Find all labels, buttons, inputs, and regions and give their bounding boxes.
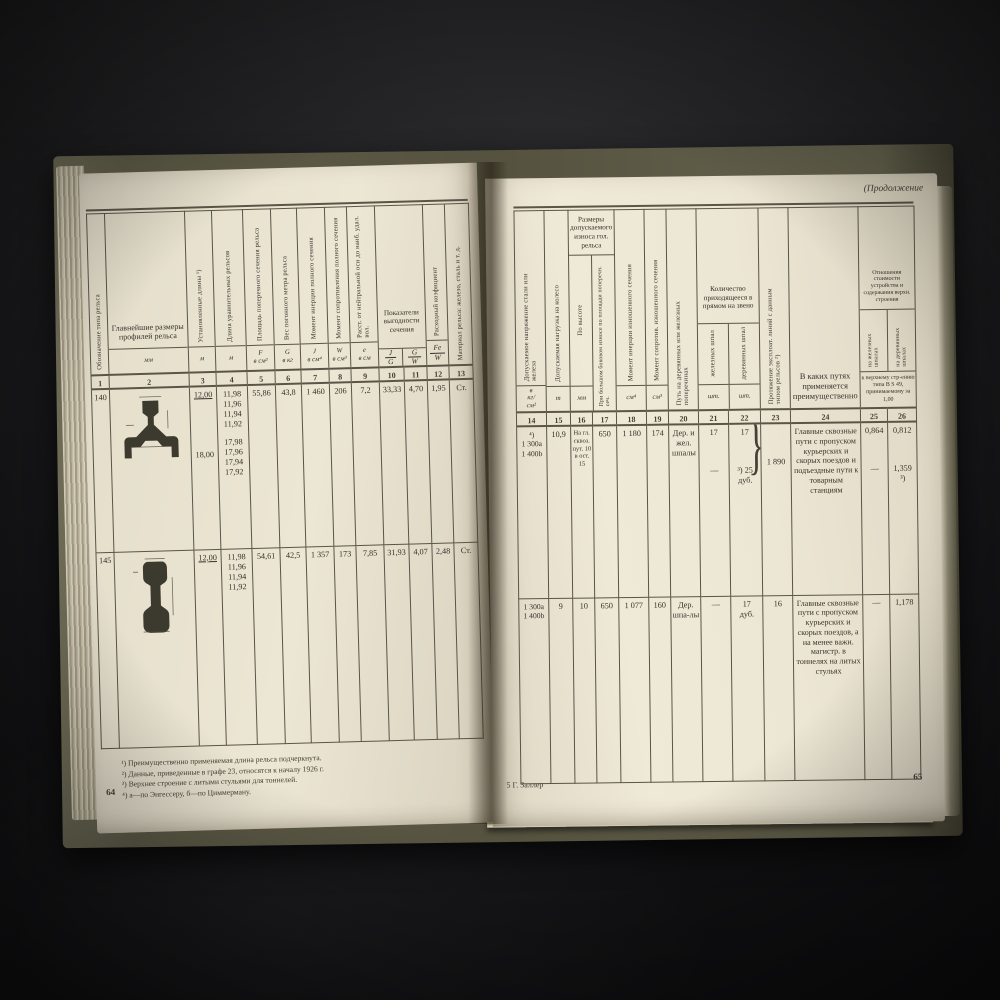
axis-dist-value: 7,2	[351, 381, 384, 545]
worn-inertia-value: 1 077	[619, 597, 651, 782]
col-unit: G в кг	[275, 344, 301, 370]
cost-wood-value: 1,178	[890, 594, 921, 779]
sub-col-label: на деревянных шпалах	[895, 312, 908, 366]
col-number: 14	[516, 412, 546, 426]
area-value: 55,86	[247, 384, 280, 548]
cost-ratio-note: к верхнему стр-ению типа В S 49, принима…	[860, 370, 915, 407]
col-number: 5	[247, 370, 275, 385]
grouping-brace: }	[748, 423, 763, 479]
col-area-header: Площадь поперечного сечения рельсаF в см…	[242, 209, 274, 371]
col-unit: F в см²	[247, 344, 275, 370]
line-extent-value: 1 890	[761, 423, 793, 595]
col-number: 25	[860, 408, 887, 422]
rail-table-right: Допускаемое напряжение стали или железав…	[513, 206, 921, 784]
col-number: 20	[668, 410, 698, 424]
worn-resistance-value: 174	[647, 425, 671, 597]
col-unit: м	[216, 345, 247, 371]
gw-fraction: GW	[408, 348, 422, 366]
page-number-left: 64	[106, 787, 115, 797]
col-label: Расходный коэфициент	[432, 266, 441, 335]
col-label: Расст. от нейтральной оси до наиб. удал.…	[353, 210, 371, 338]
col-number: 13	[449, 365, 473, 380]
stress-value: ⁴) 1 300a 1 400b	[517, 426, 549, 598]
line-extent-value: 16	[763, 595, 795, 780]
rail-profile-140-drawing	[119, 394, 183, 468]
inertia-value: 1 460	[301, 383, 334, 547]
wear-side-value: 650	[595, 597, 621, 782]
col-label: Протяжение эксплоат. линий с данным типо…	[767, 276, 783, 404]
col-label: Допускаемое напряжение стали или железа	[522, 253, 538, 381]
col-label: Обозначение типа рельса	[94, 294, 103, 370]
col-worn-inertia-header: Момент инерции изношенного сечениясм⁴	[614, 209, 646, 411]
wood-sleeper-count: 17³) 25 дуб.}	[729, 423, 763, 595]
col-unit: FeW	[427, 339, 449, 365]
header-row: Допускаемое напряжение стали или железав…	[514, 206, 916, 412]
col-unit: см⁴	[617, 385, 646, 410]
usage-description: Главные сквозные пути с пропуском курьер…	[791, 422, 863, 595]
col-eqrail-header: Длина уравнительных рельсовм	[211, 210, 246, 372]
col-unit: шт.	[730, 383, 760, 408]
col-number: 26	[887, 408, 916, 422]
col-line-extent-header: Протяжение эксплоат. линий с данным типо…	[758, 208, 790, 410]
rail-profile-145-drawing	[129, 557, 181, 636]
col-unit: шт.	[699, 384, 729, 409]
col-material-header: Материал рельса: железо, сталь и т. д.	[444, 203, 473, 365]
wear-height-value: На гл. сквоз. пут. 10 в ост. 15	[571, 425, 595, 597]
col-number: 21	[698, 410, 728, 424]
group-label: Количество приходящееся в прямом на звен…	[697, 273, 759, 324]
usage-description: Главные сквозные пути с пропуском курьер…	[793, 594, 865, 780]
continuation-label: (Продолжение	[864, 183, 924, 194]
col-unit: см³	[647, 385, 668, 410]
col-label: Момент сопротив. изношенного сечения	[652, 259, 661, 380]
col-label: Путь на деревянных или железных поперечи…	[675, 277, 691, 405]
wheel-load-value: 10,9	[547, 426, 573, 598]
col-cost-ratio-group-header: Отношения стоимости устройства и содержа…	[858, 206, 916, 408]
table-row: 140 12,0018,00 11,98 11,96 11,94 11,9217…	[91, 379, 477, 553]
wheel-load-value: 9	[549, 598, 575, 783]
col-label: Допускаемая нагрузка на колесо	[553, 285, 561, 382]
col-number: 8	[329, 368, 351, 383]
few-fraction: FeW	[429, 344, 445, 362]
col-label: Материал рельса: железо, сталь и т. д.	[454, 246, 464, 360]
sub-col-label: По высоте	[577, 305, 584, 336]
group-label: Размеры допускаемого износа гол. рельса	[568, 210, 614, 255]
col-wear-group-header: Размеры допускаемого износа гол. рельса …	[568, 210, 616, 412]
group-label: Показатели выгодности сечения	[377, 295, 425, 348]
right-page: (Продолжение Допускаемое напряжение стал…	[485, 173, 945, 826]
wear-height-value: 10	[573, 597, 597, 782]
page-number-right: 65	[913, 771, 922, 781]
col-axis-dist-header: Расст. от нейтральной оси до наиб. удал.…	[346, 206, 378, 368]
col-number: 15	[546, 412, 570, 426]
col-worn-resistance-header: Момент сопротив. изношенного сечениясм³	[644, 209, 668, 411]
col-unit: в кг/ см²	[517, 385, 546, 412]
wood-sleeper-count: 17 дуб.	[731, 595, 765, 780]
col-label: Момент сопротивления полного сечения	[332, 217, 342, 338]
col-unit: мм	[571, 385, 593, 410]
printer-signature: 5 Г. Заллер	[506, 780, 543, 789]
col-number: 1	[91, 375, 109, 389]
col-profile-header: Главнейшие размеры профилей рельсамм	[104, 211, 188, 375]
footnotes: ¹) Преимущественно применяемая длина рел…	[121, 749, 484, 802]
group-label: Отношения стоимости устройства и содержа…	[859, 264, 915, 309]
col-label: Установленные длины ¹)	[196, 269, 205, 342]
col-unit: J в см⁴	[301, 343, 329, 369]
table-row: 145 12,00 11,98 11,96 11,94 11,92 54,61 …	[96, 542, 483, 749]
col-wheel-load-header: Допускаемая нагрузка на колесот	[544, 210, 570, 412]
col-number: 7	[301, 369, 329, 384]
col-usage-header: В каких путях применяется преимущественн…	[788, 207, 860, 409]
col-track-type-header: Путь на деревянных или железных поперечи…	[666, 209, 698, 411]
col-unit: е в см	[351, 341, 379, 367]
wear-side-value: 650	[593, 425, 619, 597]
sub-col-label: железных шпал	[709, 330, 717, 377]
col-inertia-header: Момент инерции полного сеченияJ в см⁴	[296, 207, 328, 369]
eq-rail-values: 11,98 11,96 11,94 11,9217,98 17,96 17,94…	[216, 385, 252, 549]
col-number: 6	[275, 370, 301, 385]
col-number: 12	[427, 365, 449, 380]
stress-value: 1 300a 1 400b	[519, 598, 551, 783]
col-label: Площадь поперечного сечения рельса	[253, 227, 263, 340]
col-number: 18	[616, 411, 646, 425]
col-unit: м	[189, 346, 216, 372]
col-number: 24	[790, 408, 860, 423]
col-number: 3	[189, 372, 216, 387]
iron-sleeper-count: 17—	[699, 424, 731, 596]
rail-profile-cell	[109, 387, 194, 552]
cost-iron-value: 0,864—	[861, 422, 890, 594]
rail-profile-cell	[114, 550, 199, 748]
col-number: 9	[351, 367, 379, 382]
col-efficiency-group-header: Показатели выгодности сечения JG GW	[374, 205, 427, 368]
col-number: 19	[646, 411, 668, 425]
col-number: 17	[592, 411, 616, 425]
col-number: 4	[216, 371, 247, 386]
col-unit: т	[547, 386, 570, 411]
col-label: Момент инерции изношенного сечения	[626, 264, 635, 381]
col-number: 23	[760, 409, 790, 423]
sub-col-label: При большом боковом износе по площади по…	[597, 258, 611, 406]
col-number: 11	[404, 366, 427, 381]
photo-background: Обозначение типа рельса Главнейшие разме…	[0, 0, 1000, 1000]
col-unit: мм	[109, 347, 189, 374]
worn-resistance-value: 160	[649, 597, 673, 782]
cost-iron-value: —	[863, 594, 892, 779]
col-label: В каких путях применяется преимущественн…	[790, 369, 859, 404]
table-row: ⁴) 1 300a 1 400b 10,9 На гл. сквоз. пут.…	[517, 422, 919, 599]
material-value: Ст.	[454, 542, 483, 739]
track-type-value: Дер. шпа-лы	[671, 596, 703, 781]
col-stress-header: Допускаемое напряжение стали или железав…	[514, 211, 546, 413]
col-label: Главнейшие размеры профилей рельса	[108, 320, 188, 345]
jg-fraction: JG	[385, 348, 397, 366]
col-quantity-group-header: Количество приходящееся в прямом на звен…	[696, 208, 760, 410]
col-label: Вес погонного метра рельса	[281, 256, 290, 340]
sub-col-label: деревянных шпал	[740, 327, 748, 380]
col-unit: W в см³	[329, 342, 351, 368]
header-row: Обозначение типа рельса Главнейшие разме…	[86, 203, 472, 375]
rail-table-left: Обозначение типа рельса Главнейшие разме…	[86, 203, 484, 749]
col-number: 16	[570, 411, 592, 425]
iron-sleeper-count: —	[701, 596, 733, 781]
col-label: Момент инерции полного сечения	[308, 237, 318, 339]
track-type-value: Дер. и жел. шпалы	[669, 424, 701, 596]
cost-wood-value: 0,8121,359 ³)	[888, 422, 919, 594]
left-page: Обозначение типа рельса Главнейшие разме…	[79, 163, 495, 834]
material-value: Ст.	[449, 379, 478, 543]
col-number: 22	[728, 409, 760, 423]
worn-inertia-value: 1 180	[617, 425, 649, 597]
sub-col-label: на железных шпалах	[867, 312, 880, 366]
col-label: Длина уравнительных рельсов	[224, 250, 234, 342]
table-row: 1 300a 1 400b 9 10 650 1 077 160 Дер. шп…	[519, 594, 921, 784]
col-number: 10	[379, 367, 404, 382]
